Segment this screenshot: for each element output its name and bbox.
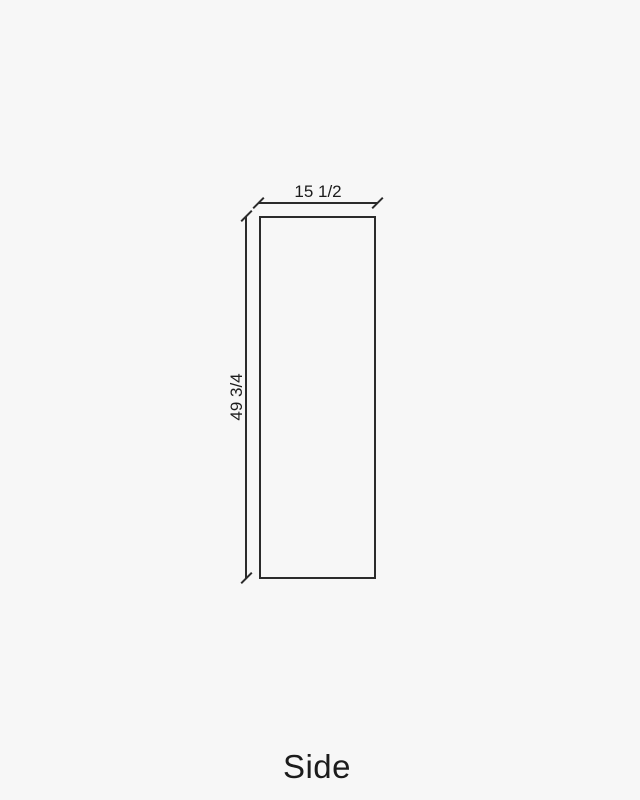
width-dimension-line bbox=[258, 202, 378, 204]
height-dimension-label: 49 3/4 bbox=[228, 357, 246, 437]
view-caption: Side bbox=[0, 748, 634, 786]
width-dimension-label: 15 1/2 bbox=[258, 183, 378, 201]
panel-side-outline bbox=[259, 216, 376, 579]
technical-drawing-canvas: 15 1/2 49 3/4 Side bbox=[0, 0, 640, 800]
